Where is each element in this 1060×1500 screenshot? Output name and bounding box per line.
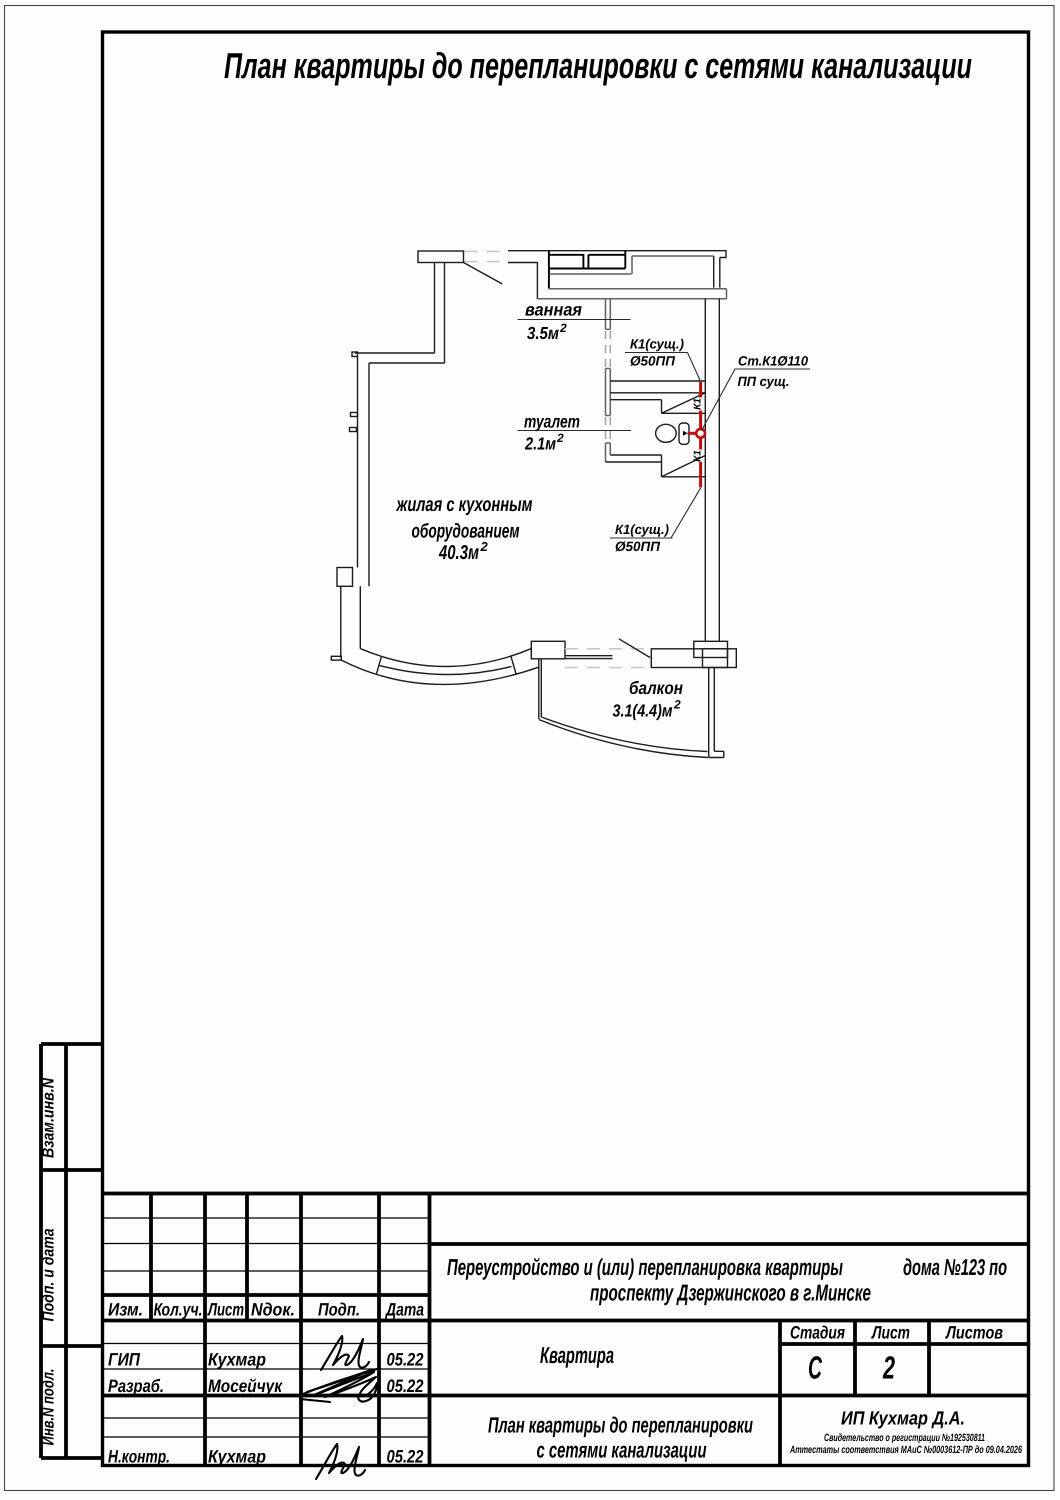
svg-text:Подп. и дата: Подп. и дата [40,1229,58,1322]
svg-text:К1: К1 [693,450,704,462]
svg-text:Мосейчук: Мосейчук [208,1376,283,1396]
svg-text:Ø50ПП: Ø50ПП [615,539,660,554]
svg-text:2: 2 [673,698,681,712]
svg-text:Квартира: Квартира [540,1342,614,1368]
svg-text:План квартиры до перепланировк: План квартиры до перепланировки с сетями… [224,45,972,86]
svg-text:05.22: 05.22 [387,1350,424,1370]
svg-text:ГИП: ГИП [108,1350,141,1370]
svg-text:Н.контр.: Н.контр. [108,1447,170,1467]
svg-text:Подп.: Подп. [318,1300,360,1320]
svg-text:К1(сущ.): К1(сущ.) [615,522,669,537]
svg-text:с сетями канализации: с сетями канализации [537,1438,707,1463]
svg-text:Лист: Лист [207,1300,244,1320]
svg-text:Разраб.: Разраб. [108,1376,164,1396]
svg-text:Изм.: Изм. [108,1300,143,1320]
svg-text:оборудованием: оборудованием [412,521,520,543]
svg-text:ИП Кухмар Д.А.: ИП Кухмар Д.А. [841,1409,965,1430]
svg-text:проспекту Дзержинского в г.Мин: проспекту Дзержинского в г.Минске [590,1280,871,1306]
svg-text:3.1(4.4)м: 3.1(4.4)м [613,701,673,721]
svg-text:К1(сущ.): К1(сущ.) [630,337,684,352]
svg-text:Ø50ПП: Ø50ПП [630,354,675,369]
svg-text:Листов: Листов [944,1323,1003,1343]
svg-text:Взам.инв.N: Взам.инв.N [40,1077,58,1158]
svg-text:Кол.уч.: Кол.уч. [154,1300,203,1320]
svg-text:Свидетельство о регистрации №1: Свидетельство о регистрации №192530811 [824,1432,985,1444]
svg-text:Ст.К1Ø110: Ст.К1Ø110 [738,354,808,369]
svg-text:Стадия: Стадия [790,1323,845,1343]
svg-text:балкон: балкон [629,678,683,698]
svg-text:Аттестаты соответствия МАиС №0: Аттестаты соответствия МАиС №0003612-ПР … [789,1444,1022,1456]
svg-text:2: 2 [480,539,489,554]
svg-text:Кухмар: Кухмар [208,1447,266,1467]
svg-text:ПП сущ.: ПП сущ. [738,374,790,389]
svg-text:2.1м: 2.1м [524,434,556,454]
svg-text:40.3м: 40.3м [438,542,479,564]
svg-text:Дата: Дата [384,1300,424,1320]
svg-text:Лист: Лист [870,1323,910,1343]
svg-text:жилая с кухонным: жилая с кухонным [396,494,533,516]
svg-text:05.22: 05.22 [387,1376,424,1396]
svg-text:2: 2 [559,321,567,335]
svg-text:ванная: ванная [525,300,582,320]
svg-text:туалет: туалет [524,412,580,432]
svg-text:К1: К1 [693,398,704,410]
svg-text:Переустройство и (или) перепла: Переустройство и (или) перепланировка кв… [447,1254,843,1280]
svg-text:Инв.N подл.: Инв.N подл. [40,1369,58,1446]
svg-text:С: С [808,1350,823,1386]
svg-text:дома №123 по: дома №123 по [903,1254,1007,1280]
svg-text:3.5м: 3.5м [527,323,559,343]
svg-text:05.22: 05.22 [387,1447,424,1467]
svg-text:План квартиры до перепланировк: План квартиры до перепланировки [488,1413,753,1438]
svg-text:2: 2 [882,1350,895,1386]
svg-text:2: 2 [556,431,564,445]
svg-text:Nдок.: Nдок. [251,1300,295,1320]
svg-text:Кухмар: Кухмар [208,1350,266,1370]
